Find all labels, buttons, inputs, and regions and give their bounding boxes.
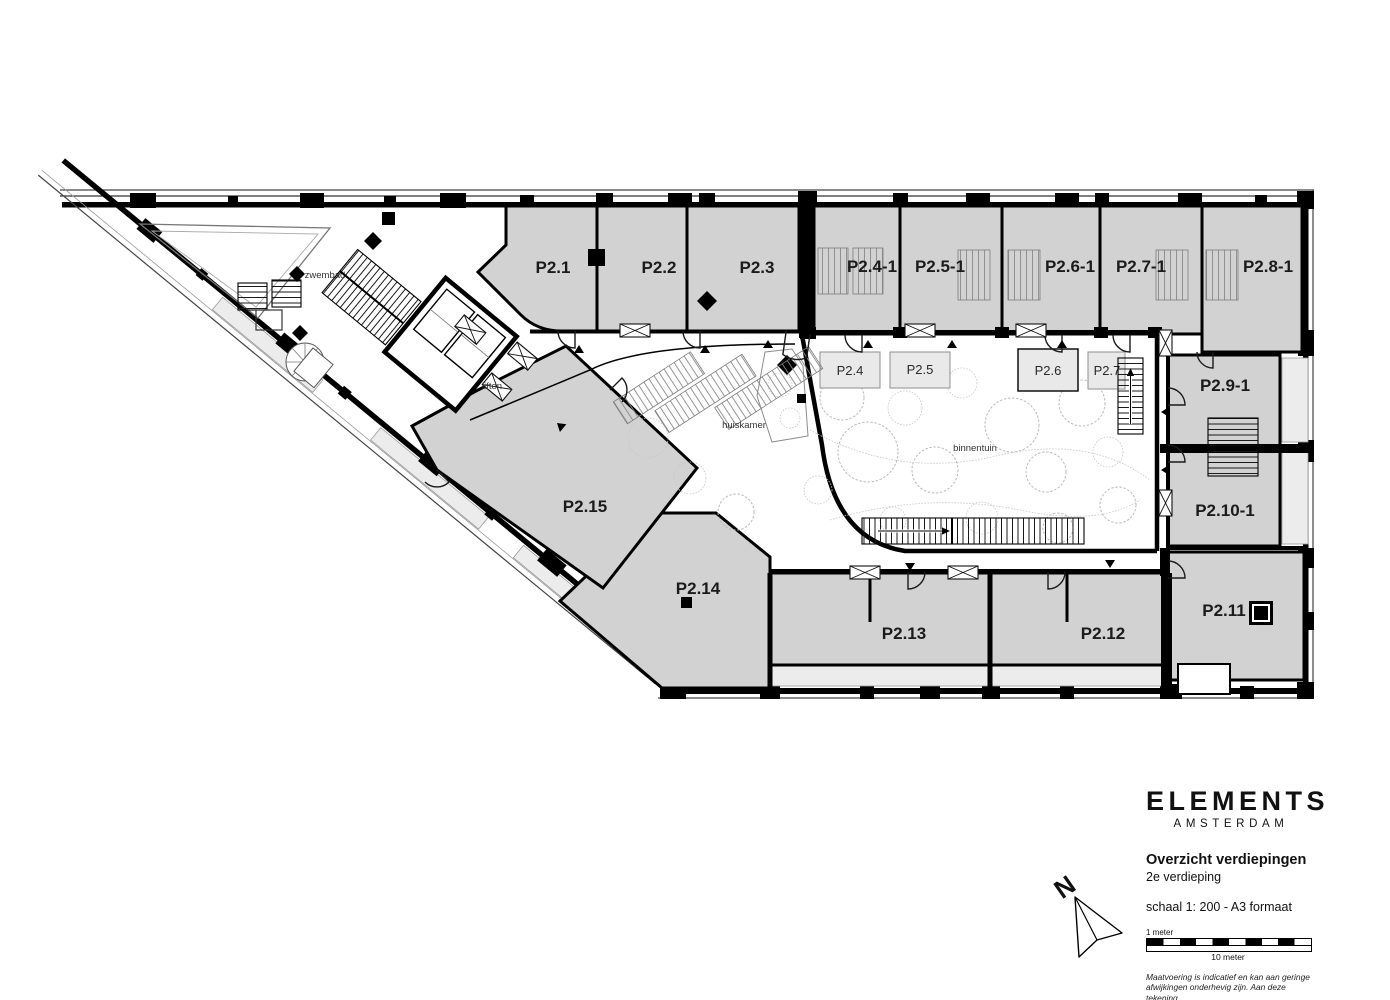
garden-unit-label-p2-5: P2.5 bbox=[907, 362, 934, 377]
north-arrow: N bbox=[1048, 869, 1122, 957]
unit-label-p2-14: P2.14 bbox=[676, 579, 721, 598]
unit-label-p2-9-1: P2.9-1 bbox=[1200, 376, 1250, 395]
unit-p2-12 bbox=[990, 573, 1165, 665]
drawing-title: Overzicht verdiepingen bbox=[1146, 852, 1316, 868]
p2-11-terrace bbox=[1178, 664, 1230, 694]
garden-unit-label-p2-7: P2.7 bbox=[1094, 363, 1121, 378]
unit-label-p2-12: P2.12 bbox=[1081, 624, 1125, 643]
courtyard: P2.4 P2.5 P2.6 P2.7 binnentuin bbox=[757, 349, 1150, 544]
disclaimer: Maatvoering is indicatief en kan aan ger… bbox=[1146, 972, 1316, 1000]
scalebar-small-label: 1 meter bbox=[1146, 928, 1316, 937]
disclaimer-line: Maatvoering is indicatief en kan aan ger… bbox=[1146, 972, 1316, 982]
area-label-liften: liften bbox=[482, 381, 502, 392]
garden-unit-label-p2-4: P2.4 bbox=[837, 363, 864, 378]
scalebar bbox=[1146, 938, 1312, 952]
unit-label-p2-5-1: P2.5-1 bbox=[915, 257, 965, 276]
column-diamond bbox=[364, 232, 382, 250]
brand-sublogo: AMSTERDAM bbox=[1146, 818, 1316, 830]
garden-trees bbox=[804, 368, 1150, 543]
garden-unit-label-p2-6: P2.6 bbox=[1035, 363, 1062, 378]
unit-label-p2-8-1: P2.8-1 bbox=[1243, 257, 1293, 276]
floorplan-page: P2.4 P2.5 P2.6 P2.7 binnentuin bbox=[0, 0, 1390, 1000]
unit-label-p2-15: P2.15 bbox=[563, 497, 607, 516]
disclaimer-line: afwijkingen onderhevig zijn. Aan deze te… bbox=[1146, 982, 1316, 1000]
column-diamond bbox=[292, 325, 308, 341]
drawing-floor: 2e verdieping bbox=[1146, 870, 1316, 884]
area-label-binnentuin: binnentuin bbox=[953, 443, 997, 454]
unit-label-p2-7-1: P2.7-1 bbox=[1116, 257, 1166, 276]
unit-p2-13 bbox=[770, 573, 990, 665]
unit-label-p2-10-1: P2.10-1 bbox=[1195, 501, 1255, 520]
scalebar-big-label: 10 meter bbox=[1146, 952, 1310, 962]
title-block: ELEMENTS AMSTERDAM Overzicht verdiepinge… bbox=[1146, 786, 1316, 1000]
unit-label-p2-6-1: P2.6-1 bbox=[1045, 257, 1095, 276]
unit-label-p2-2: P2.2 bbox=[642, 258, 677, 277]
unit-label-p2-13: P2.13 bbox=[882, 624, 926, 643]
unit-label-p2-1: P2.1 bbox=[536, 258, 571, 277]
area-label-huiskamer: huiskamer bbox=[722, 420, 766, 431]
garden-unit-boxes: P2.4 P2.5 P2.6 P2.7 bbox=[820, 349, 1125, 391]
unit-label-p2-4-1: P2.4-1 bbox=[847, 257, 897, 276]
unit-label-p2-11: P2.11 bbox=[1202, 601, 1246, 620]
spiral-stair bbox=[286, 343, 333, 388]
drawing-scale: schaal 1: 200 - A3 formaat bbox=[1146, 900, 1316, 914]
p2-11-shaft bbox=[1249, 601, 1273, 625]
brand-logo: ELEMENTS bbox=[1146, 786, 1316, 817]
unit-label-p2-3: P2.3 bbox=[740, 258, 775, 277]
